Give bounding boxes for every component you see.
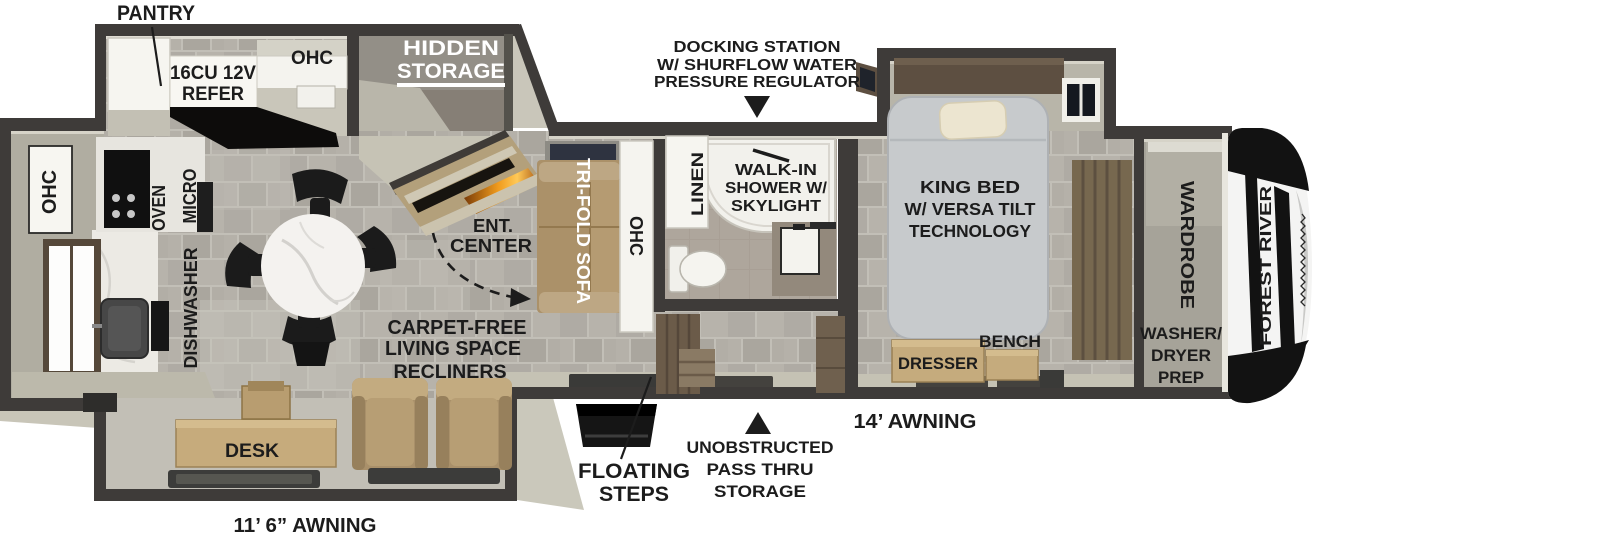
svg-text:STORAGE: STORAGE <box>714 483 806 501</box>
svg-text:KING BED: KING BED <box>920 177 1020 197</box>
svg-text:11’ 6” AWNING: 11’ 6” AWNING <box>234 515 377 534</box>
svg-text:DRYER: DRYER <box>1151 347 1211 365</box>
svg-text:CARPET-FREE: CARPET-FREE <box>388 317 527 339</box>
svg-text:OHC: OHC <box>291 48 333 69</box>
svg-text:TRI-FOLD SOFA: TRI-FOLD SOFA <box>573 158 593 304</box>
svg-text:SKYLIGHT: SKYLIGHT <box>731 198 821 215</box>
svg-text:LINEN: LINEN <box>688 152 707 216</box>
svg-text:PASS THRU: PASS THRU <box>707 461 814 479</box>
svg-text:STEPS: STEPS <box>599 483 669 506</box>
svg-text:WASHER/: WASHER/ <box>1140 325 1222 343</box>
svg-text:OVEN: OVEN <box>149 185 169 231</box>
svg-text:WALK-IN: WALK-IN <box>735 162 817 179</box>
svg-text:W/ VERSA TILT: W/ VERSA TILT <box>905 199 1036 219</box>
svg-text:PANTRY: PANTRY <box>117 2 195 25</box>
svg-text:PRESSURE REGULATOR: PRESSURE REGULATOR <box>654 74 860 91</box>
svg-text:PREP: PREP <box>1158 369 1204 387</box>
svg-text:REFER: REFER <box>182 84 244 105</box>
svg-text:DESK: DESK <box>225 441 279 462</box>
svg-text:HIDDEN: HIDDEN <box>403 37 499 60</box>
svg-text:UNOBSTRUCTED: UNOBSTRUCTED <box>687 439 834 457</box>
svg-text:MICRO: MICRO <box>180 169 200 224</box>
svg-text:ENT.: ENT. <box>473 216 513 236</box>
svg-text:STORAGE: STORAGE <box>397 60 505 83</box>
svg-text:DRESSER: DRESSER <box>898 354 978 373</box>
svg-text:TECHNOLOGY: TECHNOLOGY <box>909 221 1031 241</box>
svg-text:CENTER: CENTER <box>450 236 532 256</box>
svg-text:DISHWASHER: DISHWASHER <box>181 248 201 369</box>
svg-text:16CU 12V: 16CU 12V <box>170 63 256 84</box>
svg-text:DOCKING STATION: DOCKING STATION <box>674 39 841 56</box>
svg-text:WARDROBE: WARDROBE <box>1177 181 1198 309</box>
svg-text:RECLINERS: RECLINERS <box>394 362 507 383</box>
svg-text:14’ AWNING: 14’ AWNING <box>854 411 977 433</box>
svg-text:FLOATING: FLOATING <box>578 460 690 483</box>
svg-text:SHOWER W/: SHOWER W/ <box>725 180 828 197</box>
svg-text:LIVING SPACE: LIVING SPACE <box>385 338 521 360</box>
svg-text:OHC: OHC <box>39 170 61 214</box>
svg-text:BENCH: BENCH <box>979 332 1041 351</box>
svg-text:FOREST RIVER: FOREST RIVER <box>1258 186 1275 346</box>
svg-text:W/ SHURFLOW WATER: W/ SHURFLOW WATER <box>657 57 858 74</box>
svg-text:OHC: OHC <box>626 216 646 256</box>
